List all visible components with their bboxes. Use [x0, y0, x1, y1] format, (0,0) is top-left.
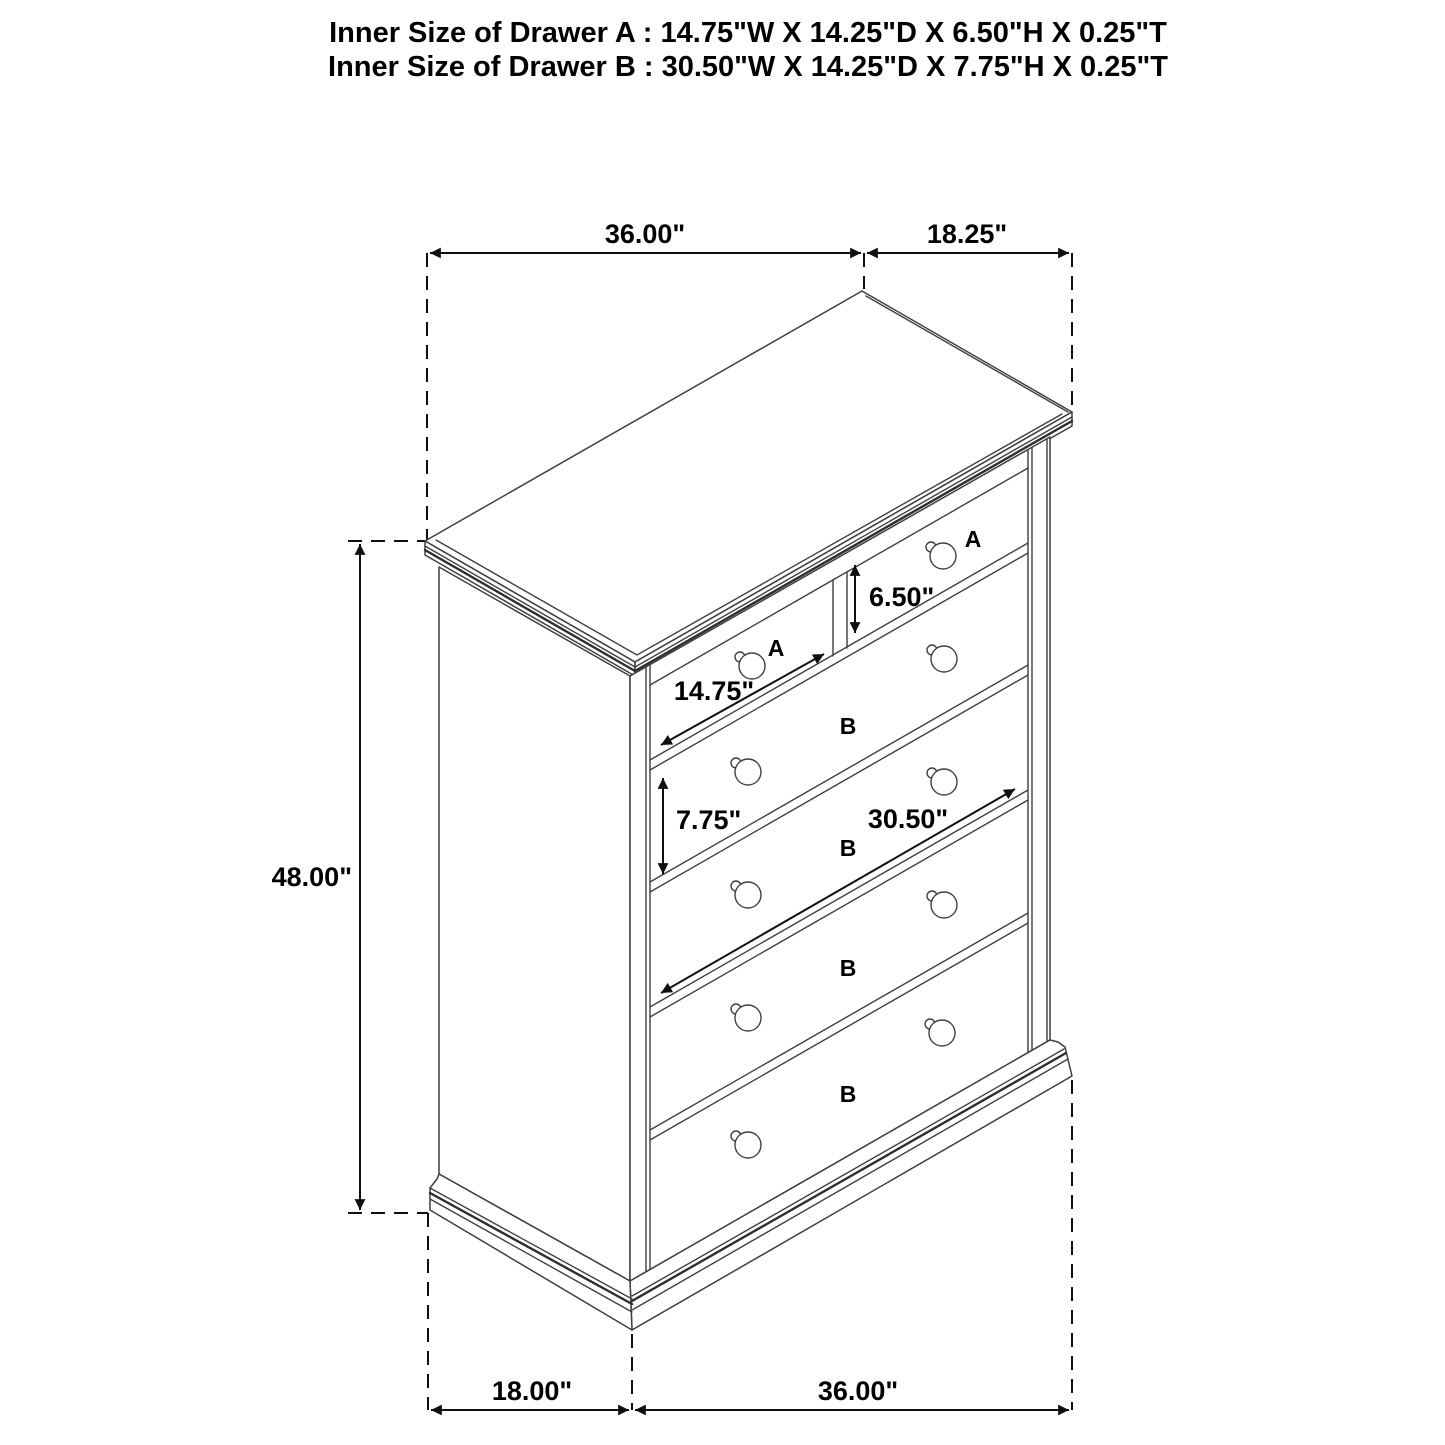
top-depth-label: 18.25" [927, 219, 1007, 249]
drawer-label-b-row4: B [840, 955, 857, 981]
drawer-label-a-right: A [965, 526, 982, 552]
top-width-label: 36.00" [605, 219, 685, 249]
bottom-depth-label: 18.00" [492, 1376, 572, 1406]
drawer-a-width-label: 14.75" [674, 676, 754, 706]
drawer-label-b-row3: B [840, 835, 857, 861]
diagram-canvas: Inner Size of Drawer A : 14.75"W X 14.25… [0, 0, 1445, 1445]
drawer-label-a-left: A [768, 635, 785, 661]
furniture-dimension-diagram: Inner Size of Drawer A : 14.75"W X 14.25… [0, 0, 1445, 1445]
drawer-label-b-row5: B [840, 1081, 857, 1107]
title-line-drawer-b: Inner Size of Drawer B : 30.50"W X 14.25… [328, 51, 1168, 83]
height-dimension: 48.00" [272, 541, 428, 1213]
drawer-b-width-label: 30.50" [868, 804, 948, 834]
drawer-b-height-label: 7.75" [676, 805, 741, 835]
title-block: Inner Size of Drawer A : 14.75"W X 14.25… [328, 17, 1168, 83]
drawer-label-b-row2: B [840, 713, 857, 739]
side-panel-face [439, 567, 630, 1281]
bottom-width-label: 36.00" [818, 1376, 898, 1406]
title-line-drawer-a: Inner Size of Drawer A : 14.75"W X 14.25… [329, 17, 1167, 49]
cabinet-side-panel [439, 567, 634, 1281]
overall-height-label: 48.00" [272, 862, 352, 892]
drawer-a-height-label: 6.50" [869, 582, 934, 612]
